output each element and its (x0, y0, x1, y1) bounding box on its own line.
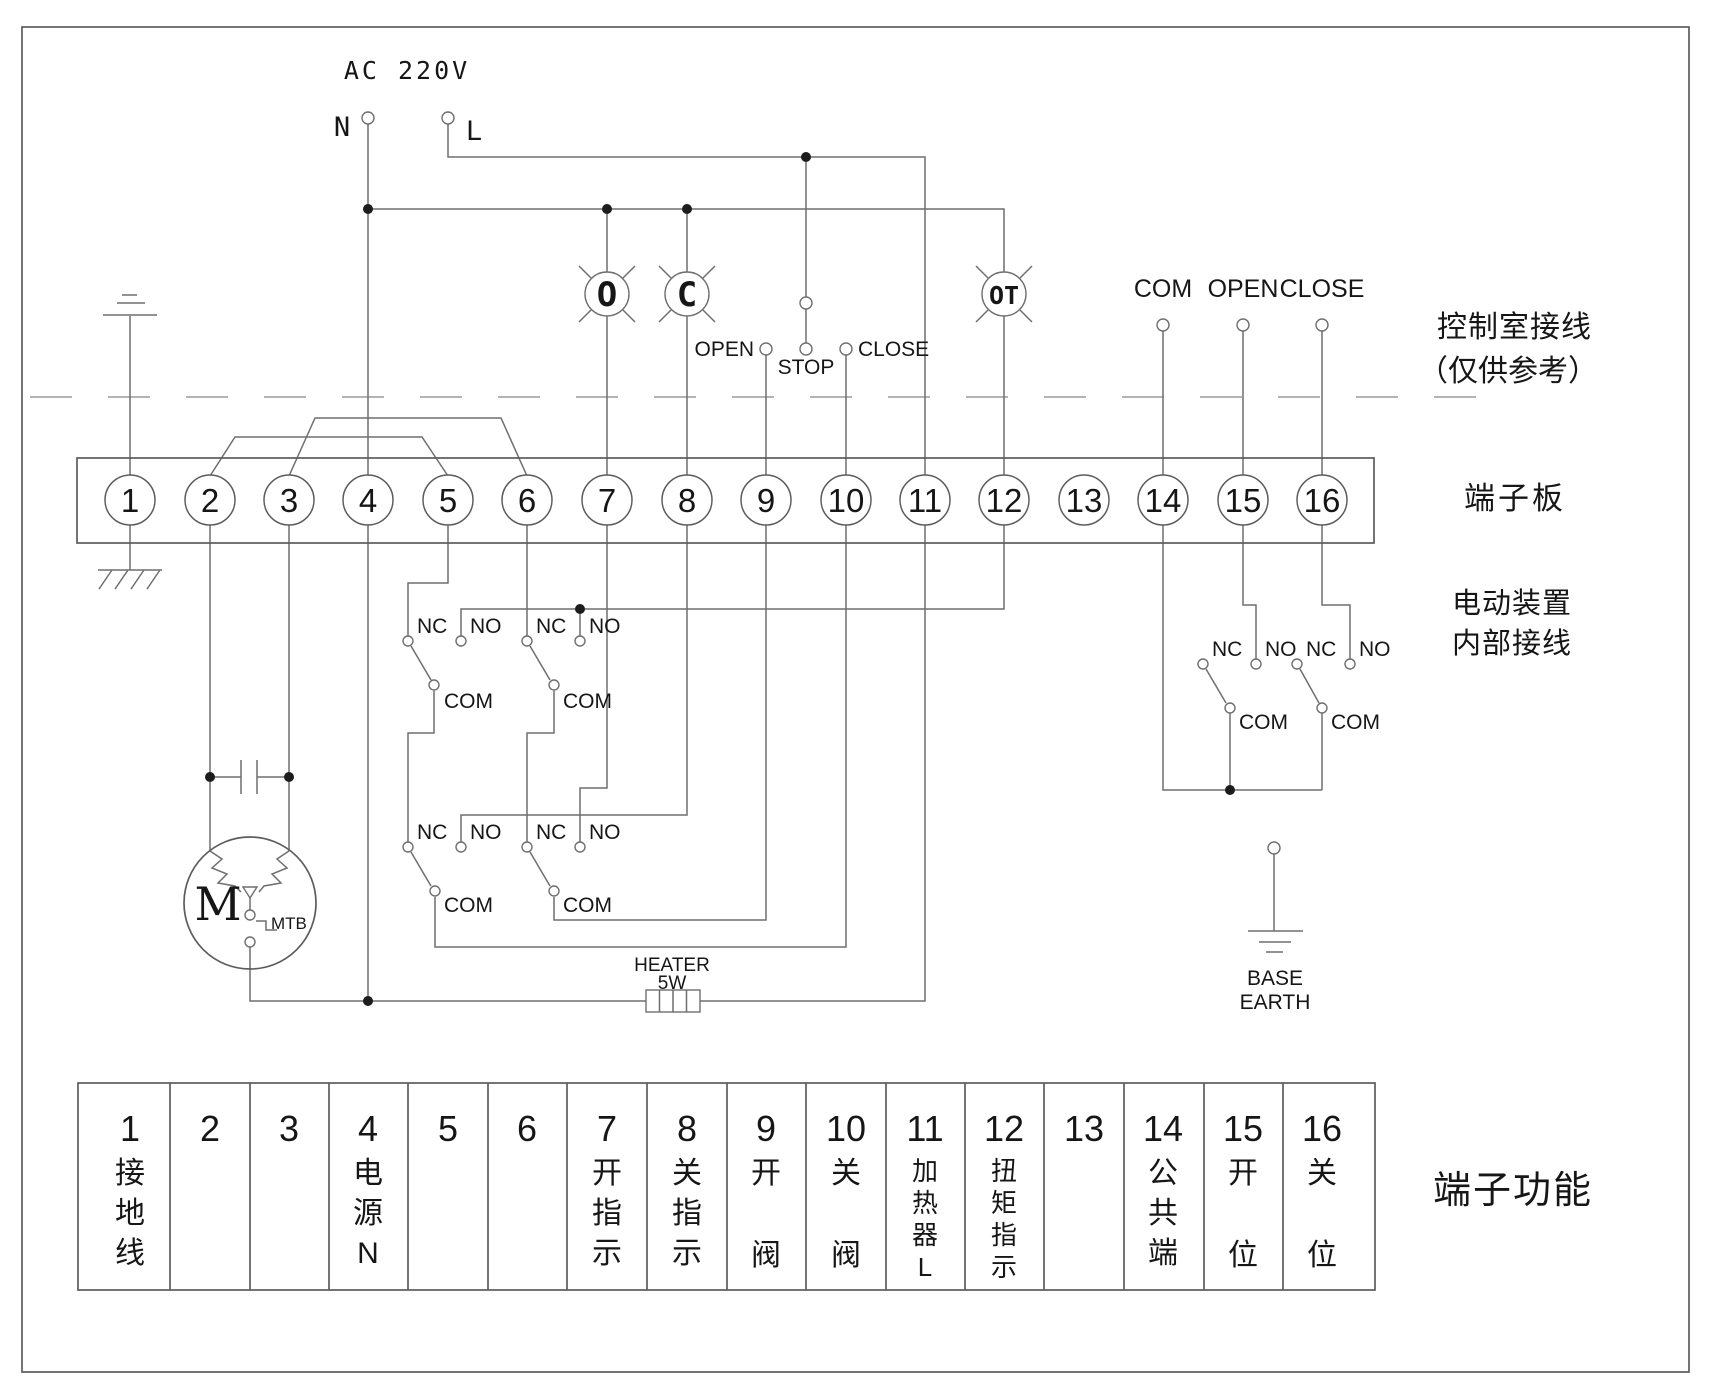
stop-button-label: STOP (778, 356, 835, 379)
table-cell-number: 3 (279, 1108, 299, 1149)
table-cell-number: 4 (358, 1108, 378, 1149)
base-earth: BASE EARTH (1240, 842, 1311, 1014)
com-label: COM (563, 894, 612, 917)
earth-symbol-icon (1248, 931, 1303, 952)
table-cell-function: 开位 (1228, 1157, 1258, 1272)
junction-dot (363, 996, 373, 1006)
switch-blade (1206, 669, 1226, 703)
terminal-number: 9 (757, 482, 775, 519)
wire-t11-heater (700, 500, 925, 1001)
junction-dots (205, 152, 1235, 1006)
table-cell-number: 14 (1143, 1108, 1183, 1149)
table-cell-number: 5 (438, 1108, 458, 1149)
table-cell-number: 13 (1064, 1108, 1104, 1149)
terminal-number: 2 (201, 482, 219, 519)
table-cell-function: 接地线 (115, 1157, 145, 1270)
stop-button-top-contact (800, 297, 812, 309)
com-label: COM (444, 894, 493, 917)
no-contact (1345, 659, 1355, 669)
com-label: COM (1239, 711, 1288, 734)
remote-com-circle (1157, 319, 1169, 331)
open-lamp-letter: O (597, 275, 617, 315)
terminal-board-note: 端子板 (1464, 481, 1566, 516)
no-contact (456, 842, 466, 852)
terminal-number: 6 (518, 482, 536, 519)
table-cell-number: 12 (984, 1108, 1024, 1149)
table-cell-function: 公共端 (1148, 1157, 1178, 1270)
table-cell-function: 开指示 (592, 1157, 622, 1270)
com-contact (1225, 703, 1235, 713)
terminal-number: 14 (1145, 482, 1182, 519)
capacitor-icon (241, 760, 257, 794)
capacitor-plates (241, 760, 257, 794)
no-label: NO (1359, 638, 1391, 661)
reference-only-note: （仅供参考） (1418, 355, 1598, 388)
wire-heater-bus-motor (250, 947, 646, 1001)
function-table: 1 2 3 4 5 6 7 8 9 10 11 12 13 14 15 16 接… (78, 1083, 1375, 1290)
nc-contact (522, 636, 532, 646)
live-label: L (466, 116, 482, 147)
no-contact (575, 842, 585, 852)
nc-label: NC (417, 821, 447, 844)
base-label: BASE (1247, 967, 1303, 990)
table-cell-number: 1 (120, 1108, 140, 1149)
table-cell-function: 加热器L (912, 1156, 938, 1282)
no-contact (456, 636, 466, 646)
no-label: NO (589, 821, 621, 844)
nc-label: NC (1212, 638, 1242, 661)
table-cell-number: 8 (677, 1108, 697, 1149)
table-cell-number: 9 (756, 1108, 776, 1149)
wiring (130, 124, 1350, 1001)
stop-button-bottom-contact (800, 343, 812, 355)
open-button-contact (760, 343, 772, 355)
no-label: NO (470, 615, 502, 638)
remote-close-label: CLOSE (1280, 275, 1365, 303)
earth-bars (103, 295, 157, 315)
table-cell-function: 关位 (1307, 1157, 1337, 1272)
switch-blade (1300, 669, 1319, 703)
nc-label: NC (417, 615, 447, 638)
wire-com2-nc2b (527, 691, 554, 842)
chassis-earth-icon (98, 570, 162, 589)
terminal-number: 8 (678, 482, 696, 519)
junction-dot (1225, 785, 1235, 795)
table-cell-number: 7 (597, 1108, 617, 1149)
com-contact (429, 680, 439, 690)
close-button-label: CLOSE (858, 338, 929, 361)
com-contact (430, 886, 440, 896)
terminal-number: 13 (1066, 482, 1103, 519)
base-earth-terminal (1268, 842, 1280, 854)
wire-t7-no (580, 500, 607, 842)
no-label: NO (589, 615, 621, 638)
mtb-contact-bottom (245, 937, 255, 947)
com-label: COM (444, 690, 493, 713)
nc-contact (1198, 659, 1208, 669)
open-button-label: OPEN (694, 338, 754, 361)
junction-dot (682, 204, 692, 214)
diagram-canvas: AC 220V N L O C OT OPEN STOP CLOSE COM O… (0, 0, 1711, 1396)
jumper-t3-t6 (289, 418, 527, 476)
terminal-number: 15 (1225, 482, 1262, 519)
no-contact (1251, 659, 1261, 669)
table-cell-number: 11 (906, 1108, 943, 1149)
wire-t8-no (461, 500, 687, 842)
terminal-number: 4 (359, 482, 377, 519)
device-internal-note-1: 电动装置 (1452, 587, 1572, 620)
table-cell-function: 开阀 (751, 1157, 781, 1272)
wiring-diagram: AC 220V N L O C OT OPEN STOP CLOSE COM O… (0, 0, 1711, 1396)
open-indicator-lamp: O (579, 266, 635, 322)
heater: HEATER 5W (634, 955, 710, 1012)
winding-junction-arrow (243, 887, 257, 898)
pushbutton-station: OPEN STOP CLOSE (694, 297, 929, 379)
com-contact (549, 680, 559, 690)
no-label: NO (470, 821, 502, 844)
table-cell-function: 电源N (353, 1157, 383, 1270)
com-label: COM (1331, 711, 1380, 734)
remote-terminals: COM OPEN CLOSE (1134, 275, 1365, 331)
nc-label: NC (536, 821, 566, 844)
remote-com-label: COM (1134, 275, 1192, 303)
close-lamp-letter: C (677, 275, 697, 315)
torque-switches: NC NO NC NO COM COM (403, 615, 621, 713)
jumper-t2-t5 (210, 437, 448, 476)
table-cell-number: 6 (517, 1108, 537, 1149)
table-cell-number: 16 (1302, 1108, 1342, 1149)
junction-dot (575, 604, 585, 614)
remote-open-circle (1237, 319, 1249, 331)
table-cell-number: 10 (826, 1108, 866, 1149)
annotations: 控制室接线 （仅供参考） 端子板 电动装置 内部接线 端子功能 (1418, 311, 1598, 1212)
switch-blade (530, 646, 550, 680)
com-contact (1317, 703, 1327, 713)
mtb-contact-top (245, 910, 255, 920)
table-number-row: 1 2 3 4 5 6 7 8 9 10 11 12 13 14 15 16 (120, 1108, 1342, 1149)
com-label: COM (563, 690, 612, 713)
junction-dot (363, 204, 373, 214)
mtb-label: MTB (271, 914, 307, 933)
wire-com1-nc1b (408, 691, 434, 842)
close-button-contact (840, 343, 852, 355)
torque-indicator-lamp: OT (976, 266, 1032, 322)
table-cell-number: 2 (200, 1108, 220, 1149)
nc-label: NC (536, 615, 566, 638)
terminal-number: 3 (280, 482, 298, 519)
terminal-number: 5 (439, 482, 457, 519)
table-function-row: 接地线 电源N 开指示 关指示 开阀 关阀 加热器L 扭矩指示 公共端 开位 关… (115, 1156, 1337, 1282)
terminal-number: 7 (598, 482, 616, 519)
switch-blade (530, 852, 550, 886)
wire-neutral-bus (368, 209, 1004, 272)
live-terminal-circle (442, 112, 454, 124)
torque-lamp-letter: OT (989, 281, 1019, 310)
table-cell-function: 扭矩指示 (991, 1156, 1017, 1282)
nc-contact (522, 842, 532, 852)
motor-letter: M (194, 877, 241, 931)
switch-blade (411, 646, 431, 680)
no-label: NO (1265, 638, 1297, 661)
terminal-number: 16 (1304, 482, 1341, 519)
signal-earth-icon (103, 295, 157, 315)
close-indicator-lamp: C (659, 266, 715, 322)
remote-open-label: OPEN (1208, 275, 1279, 303)
earth-label: EARTH (1240, 991, 1311, 1014)
table-cell-function: 关阀 (831, 1157, 861, 1272)
junction-dot (801, 152, 811, 162)
junction-dot (284, 772, 294, 782)
control-room-note: 控制室接线 (1437, 311, 1592, 344)
neutral-label: N (334, 112, 350, 143)
table-cell-function: 关指示 (672, 1157, 702, 1270)
hatched-earth (98, 570, 162, 589)
com-contact (549, 886, 559, 896)
terminal-number: 1 (121, 482, 139, 519)
table-column-dividers (170, 1083, 1283, 1290)
switch-blade (411, 852, 431, 886)
wire-t10-com (435, 500, 846, 947)
terminal-number: 11 (908, 482, 942, 519)
position-switches: NC NO NC NO COM COM (1198, 638, 1391, 734)
device-internal-note-2: 内部接线 (1452, 627, 1572, 660)
terminal-number: 12 (986, 482, 1023, 519)
winding-right (259, 851, 289, 892)
nc-label: NC (1306, 638, 1336, 661)
table-title: 端子功能 (1433, 1170, 1593, 1212)
junction-dot (602, 204, 612, 214)
terminal-number: 10 (828, 482, 865, 519)
nc-contact (403, 636, 413, 646)
table-cell-number: 15 (1223, 1108, 1263, 1149)
voltage-label: AC 220V (344, 56, 470, 85)
remote-close-circle (1316, 319, 1328, 331)
nc-contact (403, 842, 413, 852)
junction-dot (205, 772, 215, 782)
no-contact (575, 636, 585, 646)
neutral-terminal-circle (362, 112, 374, 124)
